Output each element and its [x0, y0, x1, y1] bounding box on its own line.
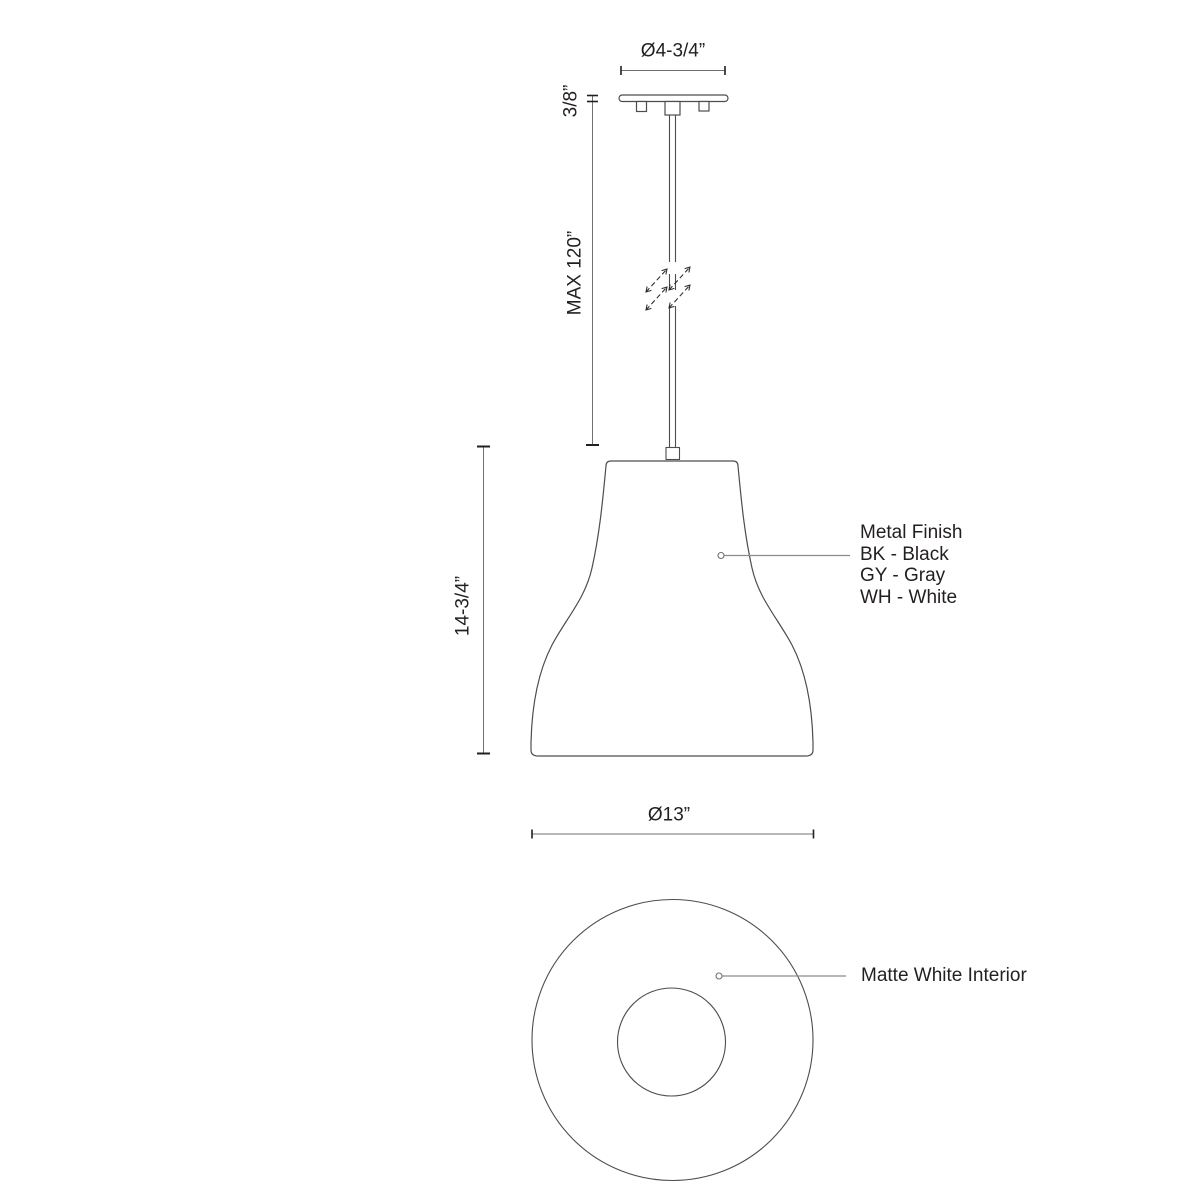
- canopy-thickness-label: 3/8”: [562, 85, 581, 118]
- canopy-diameter-label: Ø4-3/4”: [641, 42, 705, 61]
- interior-leader: [716, 973, 846, 979]
- shade-bottom-view: [532, 900, 813, 1181]
- shade-outline: [531, 461, 813, 756]
- socket-block: [666, 448, 680, 460]
- line-drawing: [0, 0, 1200, 1200]
- spec-sheet: Ø4-3/4” 3/8” MAX 120” 14-3/4” Ø13” Metal…: [0, 0, 1200, 1200]
- shade-side-view: [531, 448, 813, 757]
- canopy-thickness-dimension: [586, 96, 599, 446]
- interior-callout: Matte White Interior: [861, 965, 1027, 987]
- outer-rim-circle: [532, 900, 813, 1181]
- suspension-max-label: MAX 120”: [566, 231, 585, 315]
- finish-option-gray: GY - Gray: [860, 565, 962, 587]
- canopy-diameter-dimension: [621, 66, 725, 75]
- length-break-symbol: [646, 267, 690, 310]
- shade-diameter-label: Ø13”: [648, 806, 690, 825]
- canopy: [619, 95, 728, 115]
- inner-opening-circle: [618, 988, 726, 1096]
- shade-height-label: 14-3/4”: [454, 576, 473, 636]
- metal-finish-title: Metal Finish: [860, 522, 962, 544]
- shade-diameter-dimension: [532, 830, 814, 839]
- finish-option-black: BK - Black: [860, 544, 962, 566]
- shade-height-dimension: [477, 447, 490, 754]
- finish-option-white: WH - White: [860, 587, 962, 609]
- stem: [670, 115, 676, 448]
- metal-finish-callout: Metal Finish BK - Black GY - Gray WH - W…: [860, 522, 962, 609]
